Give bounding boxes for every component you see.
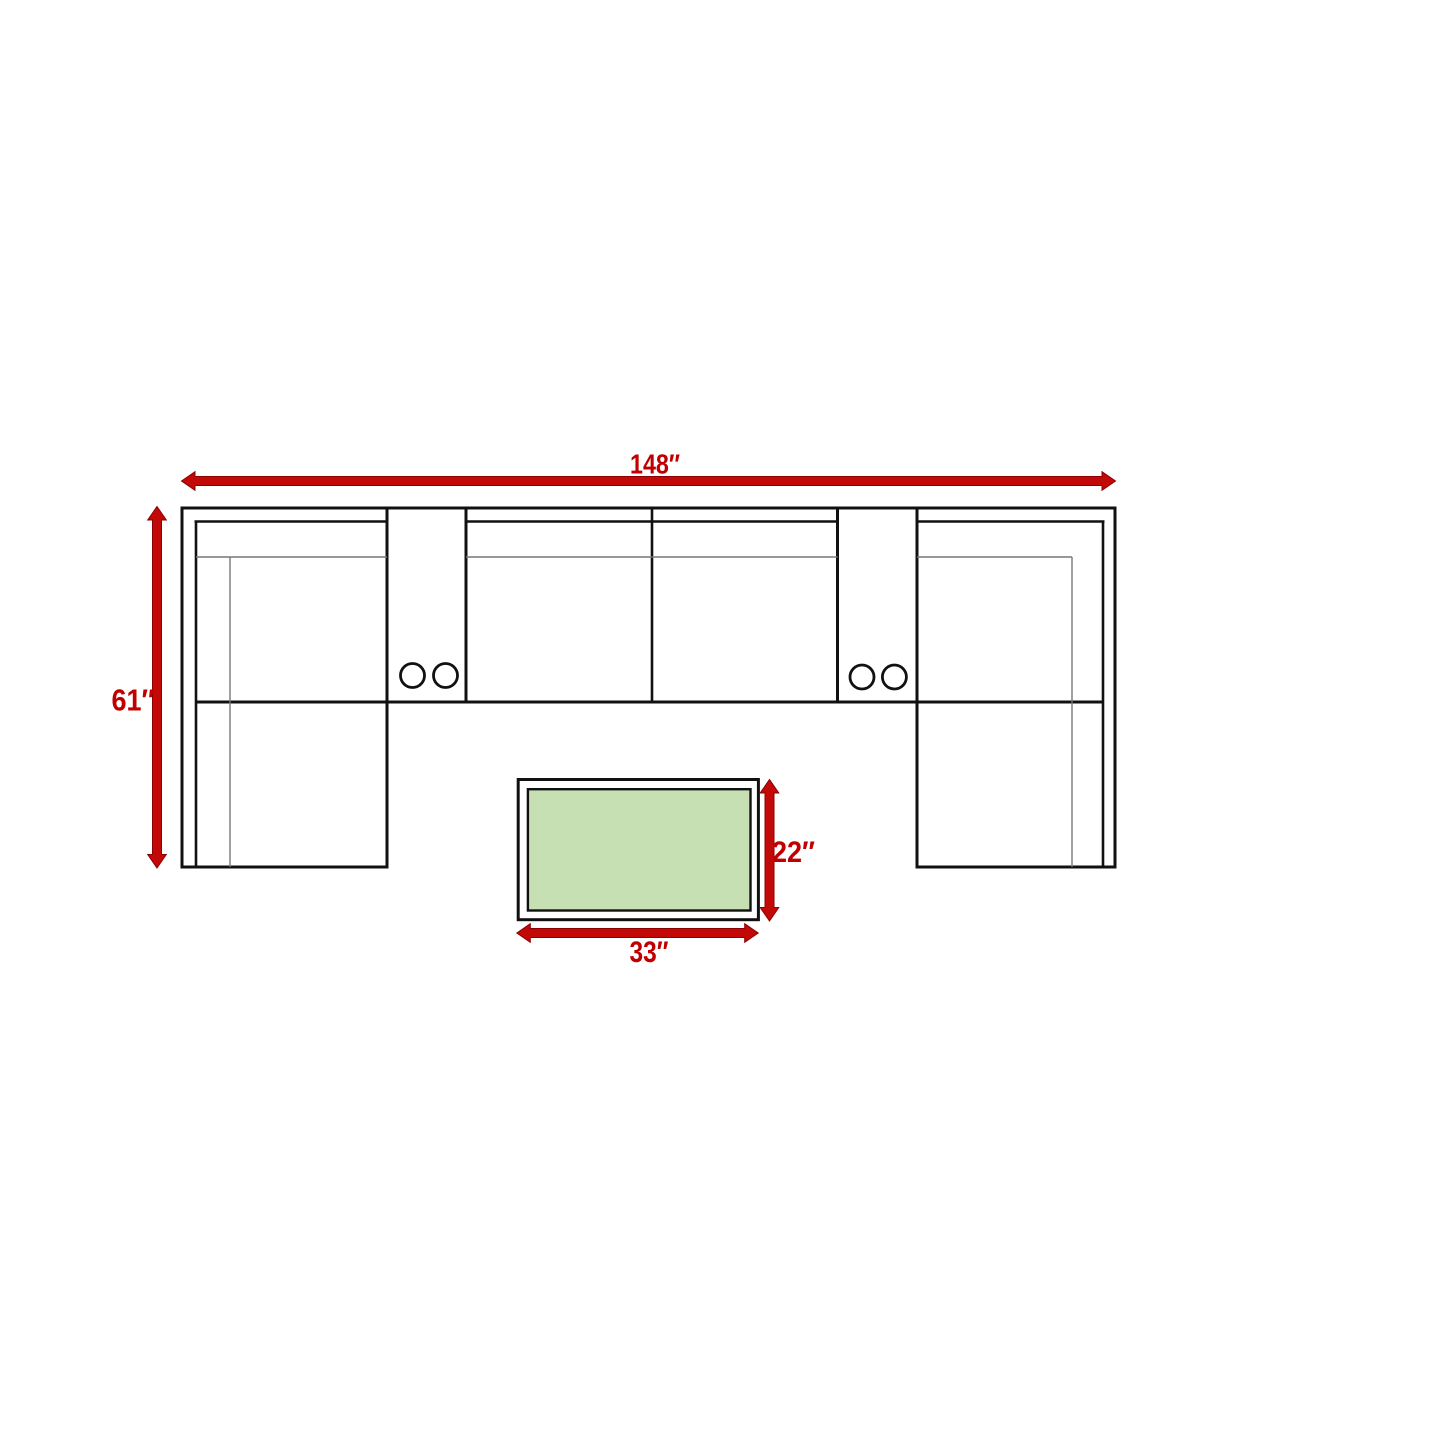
svg-text:61″: 61″ <box>112 683 155 718</box>
svg-text:33″: 33″ <box>630 936 669 969</box>
svg-text:148″: 148″ <box>630 449 680 480</box>
svg-text:22″: 22″ <box>772 836 815 869</box>
